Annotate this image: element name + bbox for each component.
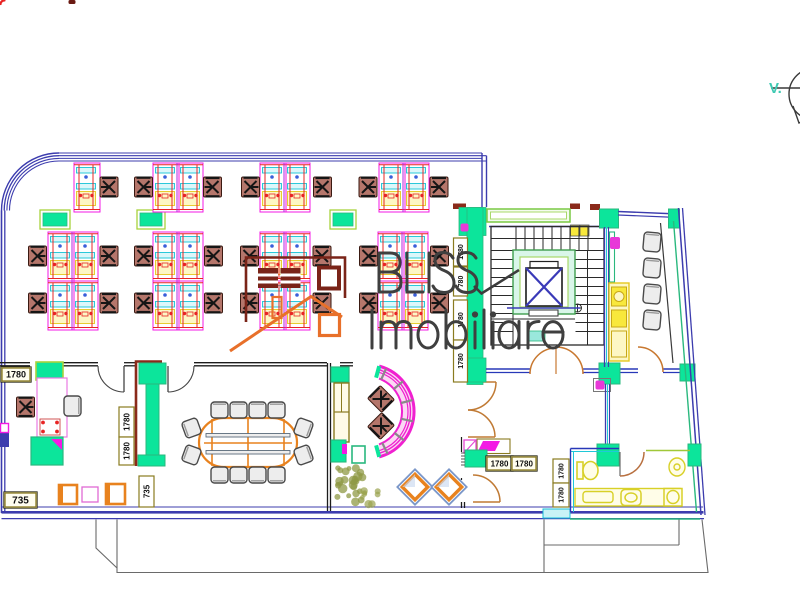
svg-text:1780: 1780: [559, 463, 566, 479]
svg-text:1780: 1780: [491, 459, 509, 468]
svg-text:1780: 1780: [122, 442, 131, 460]
svg-text:1780: 1780: [559, 487, 566, 503]
svg-text:1780: 1780: [458, 353, 465, 369]
svg-text:780: 780: [458, 276, 465, 288]
svg-text:735: 735: [12, 496, 29, 507]
svg-text:1780: 1780: [6, 370, 26, 380]
svg-text:735: 735: [142, 484, 151, 498]
svg-text:1780: 1780: [122, 413, 131, 431]
svg-text:1780: 1780: [515, 459, 533, 468]
svg-text:V.: V.: [769, 80, 782, 97]
